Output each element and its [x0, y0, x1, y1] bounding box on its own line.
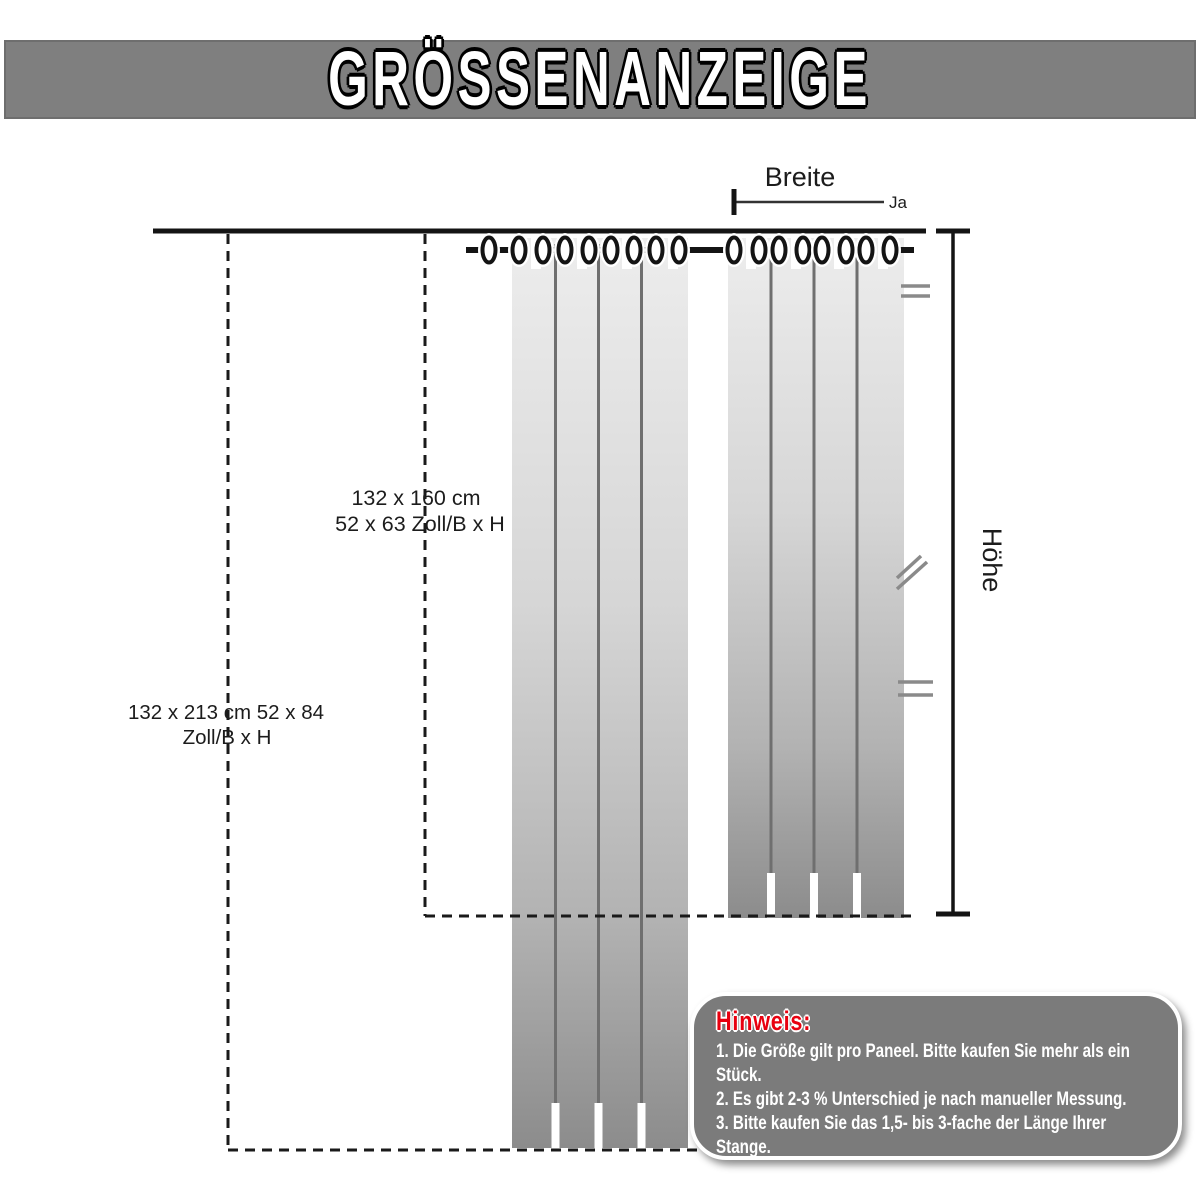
size1-line1: 132 x 160 cm — [351, 486, 480, 510]
grommet-ring — [673, 238, 686, 263]
hinweis-item: 3. Bitte kaufen Sie das 1,5- bis 3-fache… — [716, 1112, 1164, 1160]
size2-line2: Zoll/B x H — [183, 726, 272, 749]
grommet-ring — [797, 238, 810, 263]
panel-slit — [767, 873, 775, 918]
panel-slit — [638, 1103, 646, 1148]
grommet-ring — [583, 238, 596, 263]
grommet-ring — [537, 238, 550, 263]
size-diagram-page: GRÖSSENANZEIGE Breite Ja — [0, 0, 1200, 1200]
grommet-ring — [559, 238, 572, 263]
grommet-ring — [840, 238, 853, 263]
hoehe-measure: Höhe — [936, 231, 1007, 914]
panel-slit — [810, 873, 818, 918]
hinweis-box: Hinweis: 1. Die Größe gilt pro Paneel. B… — [690, 992, 1182, 1160]
grommet-ring — [816, 238, 829, 263]
panel-slit — [552, 1103, 560, 1148]
grommet-ring — [728, 238, 741, 263]
size2-line1: 132 x 213 cm 52 x 84 — [128, 701, 324, 724]
hinweis-item: 1. Die Größe gilt pro Paneel. Bitte kauf… — [716, 1040, 1164, 1088]
curtain-panel — [728, 238, 904, 918]
grommet-ring — [513, 238, 526, 263]
ja-label: Ja — [889, 193, 908, 212]
grommet-ring — [650, 238, 663, 263]
breite-label: Breite — [765, 162, 836, 192]
grommet-ring — [773, 238, 786, 263]
grommet-ring — [483, 238, 496, 263]
grommet-ring — [860, 238, 873, 263]
breite-measure: Breite Ja — [734, 162, 908, 215]
size1-line2: 52 x 63 Zoll/B x H — [335, 512, 505, 536]
grommet-ring — [753, 238, 766, 263]
grommet-ring — [605, 238, 618, 263]
grommet-ring — [628, 238, 641, 263]
hinweis-list: 1. Die Größe gilt pro Paneel. Bitte kauf… — [716, 1040, 1164, 1160]
hoehe-label: Höhe — [977, 528, 1007, 593]
hinweis-heading: Hinweis: — [716, 1006, 1164, 1037]
hinweis-item: 2. Es gibt 2-3 % Unterschied je nach man… — [716, 1088, 1164, 1112]
panel-slit — [595, 1103, 603, 1148]
grommet-ring — [884, 238, 897, 263]
hinweis-content: Hinweis: 1. Die Größe gilt pro Paneel. B… — [716, 1006, 1164, 1160]
panel-slit — [853, 873, 861, 918]
